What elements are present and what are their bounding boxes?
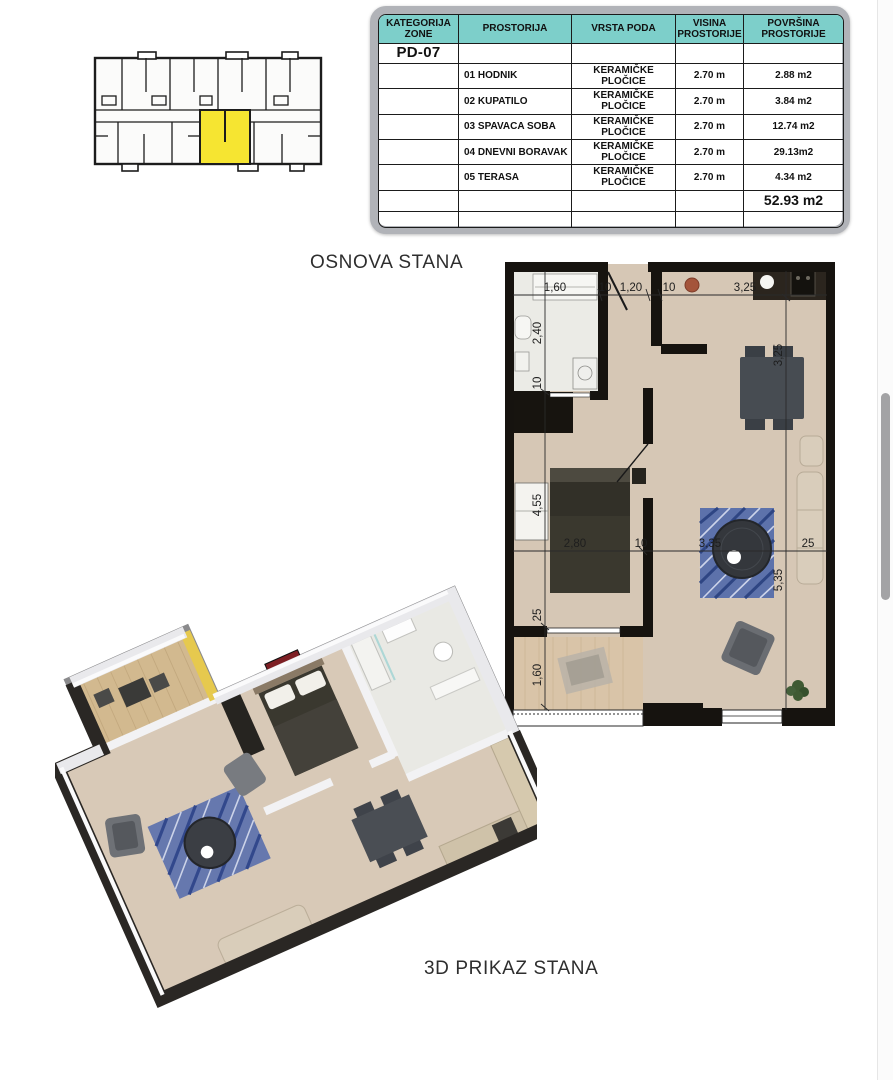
room-name: 01 HODNIK: [459, 64, 572, 89]
building-overview-plan: [88, 44, 328, 180]
zone-code: PD-07: [379, 44, 459, 64]
svg-text:5,35: 5,35: [773, 569, 785, 591]
room-floor: KERAMIČKE PLOČICE: [572, 89, 676, 114]
svg-text:10: 10: [532, 377, 544, 390]
svg-text:10: 10: [663, 282, 676, 294]
svg-text:2,40: 2,40: [532, 322, 544, 344]
empty-row: [379, 212, 843, 228]
svg-text:2,80: 2,80: [564, 538, 586, 550]
table-row: 02 KUPATILO KERAMIČKE PLOČICE 2.70 m 3.8…: [379, 89, 843, 114]
svg-text:4,55: 4,55: [532, 494, 544, 516]
room-height: 2.70 m: [676, 115, 744, 140]
header-kategorija-zone: KATEGORIJA ZONE: [379, 15, 459, 44]
armchair-3d: [104, 813, 146, 858]
floorplan-document-page: KATEGORIJA ZONE PROSTORIJA VRSTA PODA VI…: [0, 0, 893, 1080]
room-name: 04 DNEVNI BORAVAK: [459, 140, 572, 165]
svg-text:10: 10: [635, 538, 648, 550]
sofa: [797, 436, 823, 584]
room-name: 02 KUPATILO: [459, 89, 572, 114]
scrollbar-thumb[interactable]: [881, 393, 890, 600]
room-name: 05 TERASA: [459, 165, 572, 190]
svg-text:1,20: 1,20: [620, 282, 642, 294]
zone-row: PD-07: [379, 44, 843, 64]
room-height: 2.70 m: [676, 140, 744, 165]
header-prostorija: PROSTORIJA: [459, 15, 572, 44]
floorplan-2d: 1,60 10 1,20 10 3,25 2,40 10 4,55 25 1,6…: [505, 258, 835, 736]
table-row: 04 DNEVNI BORAVAK KERAMIČKE PLOČICE 2.70…: [379, 140, 843, 165]
room-floor: KERAMIČKE PLOČICE: [572, 64, 676, 89]
room-area: 3.84 m2: [744, 89, 843, 114]
svg-text:3,25: 3,25: [773, 344, 785, 366]
svg-text:3,35: 3,35: [699, 538, 721, 550]
svg-text:25: 25: [802, 538, 815, 550]
floorplan-3d: [55, 540, 537, 1010]
header-visina: VISINA PROSTORIJE: [676, 15, 744, 44]
room-area: 29.13m2: [744, 140, 843, 165]
svg-text:3,25: 3,25: [734, 282, 756, 294]
room-area: 12.74 m2: [744, 115, 843, 140]
svg-text:1,60: 1,60: [544, 282, 566, 294]
svg-text:10: 10: [599, 282, 612, 294]
table-header-row: KATEGORIJA ZONE PROSTORIJA VRSTA PODA VI…: [379, 15, 843, 44]
room-area: 4.34 m2: [744, 165, 843, 190]
dining-table: [740, 346, 804, 430]
room-area: 2.88 m2: [744, 64, 843, 89]
spec-table-card: KATEGORIJA ZONE PROSTORIJA VRSTA PODA VI…: [370, 6, 850, 234]
table-row: 01 HODNIK KERAMIČKE PLOČICE 2.70 m 2.88 …: [379, 64, 843, 89]
plan2d-title: OSNOVA STANA: [310, 252, 463, 274]
header-vrsta-poda: VRSTA PODA: [572, 15, 676, 44]
room-height: 2.70 m: [676, 89, 744, 114]
header-povrsina: POVRŠINA PROSTORIJE: [744, 15, 843, 44]
nightstand: [632, 468, 646, 484]
table-row: 03 SPAVACA SOBA KERAMIČKE PLOČICE 2.70 m…: [379, 115, 843, 140]
room-height: 2.70 m: [676, 165, 744, 190]
area-rug: [700, 508, 774, 598]
table-row: 05 TERASA KERAMIČKE PLOČICE 2.70 m 4.34 …: [379, 165, 843, 190]
coffee-table: [713, 520, 771, 578]
room-floor: KERAMIČKE PLOČICE: [572, 165, 676, 190]
spec-table: KATEGORIJA ZONE PROSTORIJA VRSTA PODA VI…: [378, 14, 844, 228]
total-row: 52.93 m2: [379, 191, 843, 212]
room-height: 2.70 m: [676, 64, 744, 89]
room-floor: KERAMIČKE PLOČICE: [572, 140, 676, 165]
room-name: 03 SPAVACA SOBA: [459, 115, 572, 140]
total-area: 52.93 m2: [744, 191, 843, 212]
room-floor: KERAMIČKE PLOČICE: [572, 115, 676, 140]
